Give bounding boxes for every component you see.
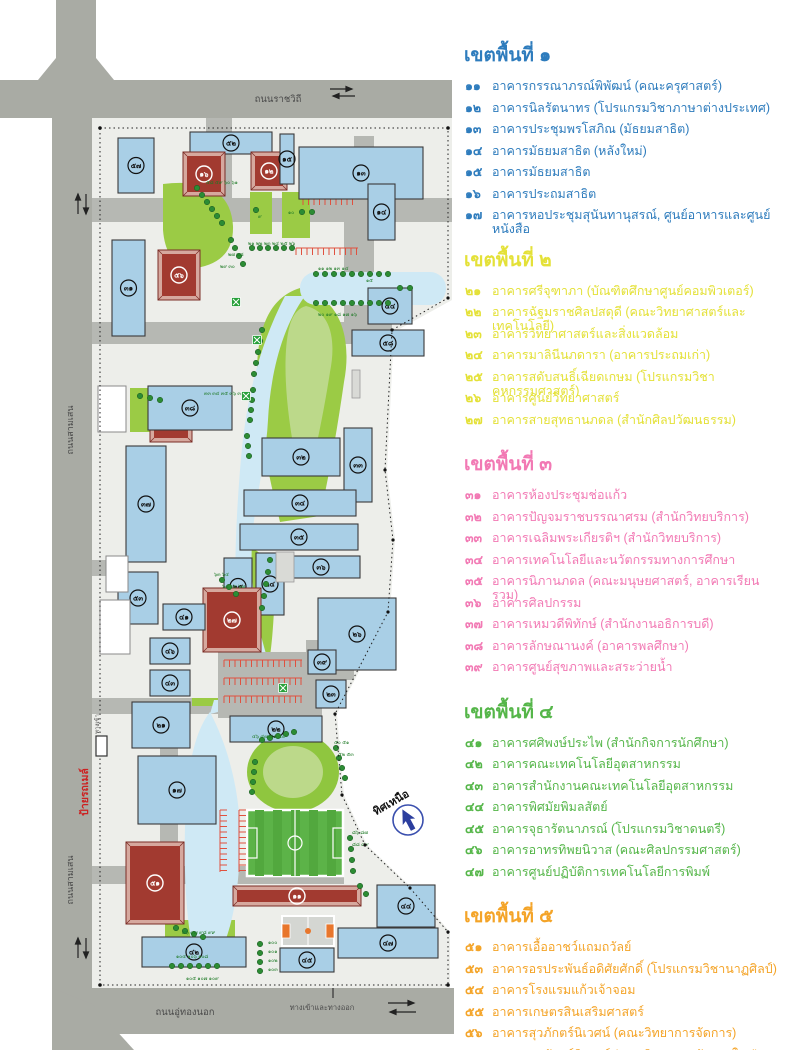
tree-number: ๑๑ ๑๒ ๑๓ ๑๔ — [318, 266, 349, 272]
tree-icon — [367, 271, 372, 276]
item-number: ๓๙ — [465, 660, 492, 674]
svg-text:๑๑: ๑๑ — [293, 893, 302, 900]
legend-item-๓๔: ๓๔อาคารเทคโนโลยีและนวัตกรรมทางการศึกษา — [458, 553, 784, 575]
item-label: อาคารสำนักงานคณะเทคโนโลยีอุตสาหกรรม — [492, 779, 784, 793]
building-๓๕: ๓๕ — [240, 524, 358, 550]
tree-icon — [209, 206, 214, 211]
tree-icon — [214, 963, 219, 968]
tree-icon — [233, 591, 238, 596]
tree-number: ๑๐๕ ๑๐๗ ๑๐๙ — [186, 976, 219, 982]
tree-number: ๒๑ ๒๒ ๒๓ ๒๔ ๒๕ ๒๖ — [248, 241, 295, 247]
tree-icon — [349, 271, 354, 276]
building-๓๔: ๓๔ — [244, 490, 356, 516]
item-label: อาคารนิลรัตนาทร (โปรแกรมวิชาภาษาต่างประเ… — [492, 101, 784, 115]
item-number: ๓๕ — [465, 574, 492, 588]
item-label: อาคารอรประพันธ์อดิศัยศักดิ์ (โปรแกรมวิชา… — [492, 962, 784, 976]
legend-item-๒๒: ๒๒อาคารฉัฐมราชศิลปสดุดี (คณะวิทยาศาสตร์แ… — [458, 305, 784, 327]
legend-item-๓๖: ๓๖อาคารศิลปกรรม — [458, 596, 784, 618]
tree-icon — [253, 207, 258, 212]
map-canvas: ๕๗๕๒๑๖๑๒๑๕๑๓๑๔๓๑๕๖๕๔๕๘๕๕๓๒๓๓๓๔๓๕๓๖๓๗๕๓๒๕… — [0, 0, 455, 1050]
crossing-marker-icon — [253, 336, 262, 345]
tree-icon — [261, 593, 266, 598]
tree-icon — [342, 775, 347, 780]
zone-title: เขตพื้นที่ ๕ — [464, 901, 784, 931]
item-label: อาคารมัธยมสาธิต (หลังใหม่) — [492, 144, 784, 158]
svg-text:๓๖: ๓๖ — [316, 564, 326, 571]
building-๔๕: ๔๕ — [280, 948, 334, 972]
item-number: ๑๑ — [465, 79, 492, 93]
tree-icon — [313, 271, 318, 276]
building-๔๗: ๔๗ — [338, 928, 438, 958]
tree-icon — [267, 557, 272, 562]
svg-text:๓๕: ๓๕ — [294, 534, 305, 541]
tree-icon — [214, 213, 219, 218]
tree-icon — [363, 891, 368, 896]
item-number: ๓๗ — [465, 617, 492, 631]
building-๑๓: ๑๓ — [299, 147, 423, 199]
item-number: ๓๖ — [465, 596, 492, 610]
item-number: ๔๗ — [465, 865, 492, 879]
building-๓๒: ๓๒ — [262, 438, 340, 476]
tree-icon — [253, 360, 258, 365]
item-number: ๑๒ — [465, 101, 492, 115]
building-๕๑: ๕๑ — [126, 842, 184, 924]
road-label-ratchawithi: ถนนราชวิถี — [255, 93, 302, 105]
tree-icon — [263, 581, 268, 586]
svg-text:๑๓: ๑๓ — [356, 170, 365, 177]
tree-icon — [178, 963, 183, 968]
building-๔๔: ๔๔ — [377, 885, 435, 927]
legend-item-๒๑: ๒๑อาคารศรีจุฑาภา (บัณฑิตศึกษาศูนย์คอมพิว… — [458, 284, 784, 306]
tree-number: ๑๕ — [366, 278, 373, 284]
svg-text:๓๔: ๓๔ — [295, 500, 306, 507]
legend-item-๓๙: ๓๙อาคารศูนย์สุขภาพและสระว่ายน้ำ — [458, 660, 784, 682]
map-legend: เขตพื้นที่ ๑๑๑อาคารกรรณาภรณ์พิพัฒน์ (คณะ… — [458, 40, 784, 1050]
item-label: อาคารประชุมพรโสภิณ (มัธยมสาธิต) — [492, 122, 784, 136]
tree-icon — [265, 569, 270, 574]
tree-icon — [331, 300, 336, 305]
campus-map: ๕๗๕๒๑๖๑๒๑๕๑๓๑๔๓๑๕๖๕๔๕๘๕๕๓๒๓๓๓๔๓๕๓๖๓๗๕๓๒๕… — [0, 0, 455, 1050]
item-number: ๓๑ — [465, 488, 492, 502]
item-label: อาคารคณะเทคโนโลยีอุตสาหกรรม — [492, 757, 784, 771]
tree-icon — [259, 605, 264, 610]
tree-icon — [313, 300, 318, 305]
svg-text:๒๑: ๒๑ — [156, 722, 165, 729]
svg-text:๕๓: ๕๓ — [133, 595, 143, 602]
legend-zone-2: เขตพื้นที่ ๒๒๑อาคารศรีจุฑาภา (บัณฑิตศึกษ… — [458, 245, 784, 435]
item-number: ๔๕ — [465, 822, 492, 836]
item-number: ๕๕ — [465, 1005, 492, 1019]
legend-item-๕๖: ๕๖อาคารสุวภักตร์นิเวศน์ (คณะวิทยาการจัดก… — [458, 1026, 784, 1048]
item-number: ๓๓ — [465, 531, 492, 545]
legend-item-๔๓: ๔๓อาคารสำนักงานคณะเทคโนโลยีอุตสาหกรรม — [458, 779, 784, 801]
svg-text:๓๑: ๓๑ — [124, 285, 133, 292]
tree-number: ๑๐๐ — [268, 940, 277, 946]
tree-icon — [251, 769, 256, 774]
legend-item-๒๖: ๒๖อาคารศูนย์วิทยาศาสตร์ — [458, 391, 784, 413]
tree-icon — [205, 963, 210, 968]
svg-text:๓๙: ๓๙ — [317, 659, 327, 666]
item-number: ๑๔ — [465, 144, 492, 158]
building-๕๔: ๕๔ — [368, 288, 412, 324]
tree-icon — [245, 443, 250, 448]
campus-map-page: ๕๗๕๒๑๖๑๒๑๕๑๓๑๔๓๑๕๖๕๔๕๘๕๕๓๒๓๓๓๔๓๕๓๖๓๗๕๓๒๕… — [0, 0, 787, 1050]
tree-number: ๙๖ ๙๗ ๙๘ ๙๙ — [182, 930, 216, 936]
tree-icon — [257, 950, 262, 955]
tree-icon — [347, 835, 352, 840]
legend-item-๔๑: ๔๑อาคารศศิพงษ์ประไพ (สำนักกิจการนักศึกษา… — [458, 736, 784, 758]
item-label: อาคารจุธารัตนาภรณ์ (โปรแกรมวิชาดนตรี) — [492, 822, 784, 836]
legend-item-๑๗: ๑๗อาคารหอประชุมสุนันทานุสรณ์, ศูนย์อาหาร… — [458, 208, 784, 230]
building-๑๔: ๑๔ — [368, 184, 395, 240]
building-๕๗: ๕๗ — [118, 138, 154, 193]
legend-item-๑๔: ๑๔อาคารมัธยมสาธิต (หลังใหม่) — [458, 144, 784, 166]
item-label: อาคารศูนย์วิทยาศาสตร์ — [492, 391, 784, 405]
tree-icon — [376, 271, 381, 276]
item-label: อาคารเอื้ออาชว์แถมถวัลย์ — [492, 940, 784, 954]
item-number: ๑๓ — [465, 122, 492, 136]
tree-number: ๓๓ ๓๔ ๓๕ ๓๖ ๓๗ — [204, 391, 245, 397]
legend-item-๓๘: ๓๘อาคารลักษณานงค์ (อาคารพลศึกษา) — [458, 639, 784, 661]
svg-text:๒๓: ๒๓ — [326, 691, 336, 698]
svg-text:๕๖: ๕๖ — [174, 272, 184, 279]
svg-text:๓๓: ๓๓ — [353, 462, 363, 469]
item-label: อาคารหอประชุมสุนันทานุสรณ์, ศูนย์อาหารแล… — [492, 208, 784, 236]
item-number: ๑๗ — [465, 208, 492, 222]
item-label: อาคารศูนย์ปฏิบัติการเทคโนโลยีการพิมพ์ — [492, 865, 784, 879]
building-๑๖: ๑๖ — [183, 152, 225, 196]
legend-item-๑๕: ๑๕อาคารมัธยมสาธิต — [458, 165, 784, 187]
building-๑๑: ๑๑ — [233, 886, 361, 906]
building-๕๖: ๕๖ — [158, 250, 200, 300]
legend-item-๒๗: ๒๗อาคารสายสุทธานภดล (สำนักศิลปวัฒนธรรม) — [458, 413, 784, 435]
legend-item-๑๖: ๑๖อาคารประถมสาธิต — [458, 187, 784, 209]
building-๓๑: ๓๑ — [112, 240, 145, 336]
svg-text:๔๖: ๔๖ — [165, 648, 175, 655]
tree-number: ๑๐ — [288, 210, 294, 216]
tree-icon — [309, 209, 314, 214]
zone-title: เขตพื้นที่ ๑ — [464, 40, 784, 70]
svg-text:๔๔: ๔๔ — [401, 903, 412, 910]
item-label: อาคารศิลปกรรม — [492, 596, 784, 610]
side-gate-label: ทางเข้า — [94, 714, 101, 734]
tree-icon — [349, 857, 354, 862]
tree-icon — [169, 963, 174, 968]
tree-number: ๕๐ ๕๑ — [334, 740, 349, 746]
svg-text:๑๗: ๑๗ — [172, 787, 182, 794]
item-label: อาคารสายสุทธานภดล (สำนักศิลปวัฒนธรรม) — [492, 413, 784, 427]
tree-icon — [357, 883, 362, 888]
legend-zone-4: เขตพื้นที่ ๔๔๑อาคารศศิพงษ์ประไพ (สำนักกิ… — [458, 697, 784, 887]
tree-icon — [376, 300, 381, 305]
tree-icon — [322, 271, 327, 276]
item-number: ๕๓ — [465, 962, 492, 976]
crossing-marker-icon — [242, 392, 251, 401]
building-unlabeled — [106, 556, 128, 592]
item-label: อาคารมาลินีนภดารา (อาคารประถมเก่า) — [492, 348, 784, 362]
legend-zone-5: เขตพื้นที่ ๕๕๑อาคารเอื้ออาชว์แถมถวัลย์๕๓… — [458, 901, 784, 1050]
building-unlabeled — [98, 386, 126, 432]
building-๒๓: ๒๓ — [316, 680, 346, 708]
tree-number: ๒๐ ๑๙ ๑๘ ๑๗ ๑๖ — [318, 312, 357, 318]
tree-icon — [322, 300, 327, 305]
building-unlabeled — [352, 370, 360, 398]
tree-icon — [157, 397, 162, 402]
tree-icon — [358, 271, 363, 276]
tree-icon — [240, 261, 245, 266]
tree-icon — [244, 433, 249, 438]
tree-icon — [204, 199, 209, 204]
svg-text:๓๘: ๓๘ — [185, 405, 196, 412]
legend-item-๒๔: ๒๔อาคารมาลินีนภดารา (อาคารประถมเก่า) — [458, 348, 784, 370]
tree-icon — [199, 192, 204, 197]
item-number: ๓๘ — [465, 639, 492, 653]
item-number: ๔๖ — [465, 843, 492, 857]
svg-text:๓๒: ๓๒ — [296, 454, 306, 461]
tree-icon — [147, 395, 152, 400]
svg-text:๔๗: ๔๗ — [383, 940, 394, 947]
item-label: อาคารประถมสาธิต — [492, 187, 784, 201]
tree-number: ๒๙ ๓๐ — [220, 264, 235, 270]
tree-icon — [350, 868, 355, 873]
tree-icon — [340, 271, 345, 276]
building-๕๒: ๕๒ — [190, 132, 272, 154]
legend-item-๒๓: ๒๓อาคารวิทยาศาสตร์และสิ่งแวดล้อม — [458, 327, 784, 349]
tree-icon — [385, 271, 390, 276]
road-label-samsen-2: ถนนสามเสน — [65, 856, 75, 905]
tree-icon — [137, 393, 142, 398]
zone-title: เขตพื้นที่ ๒ — [464, 245, 784, 275]
item-number: ๔๓ — [465, 779, 492, 793]
tree-icon — [333, 745, 338, 750]
tree-number: ๑๐๑ — [268, 949, 277, 955]
svg-text:๔๕: ๔๕ — [302, 957, 313, 964]
svg-text:๕๘: ๕๘ — [383, 340, 394, 347]
svg-text:๑๒: ๑๒ — [264, 168, 273, 175]
tree-icon — [251, 371, 256, 376]
building-๕๘: ๕๘ — [352, 330, 424, 356]
legend-item-๑๑: ๑๑อาคารกรรณาภรณ์พิพัฒน์ (คณะครุศาสตร์) — [458, 79, 784, 101]
building-๒๗: ๒๗ — [203, 588, 261, 652]
tree-icon — [196, 963, 201, 968]
football-field — [247, 810, 343, 876]
svg-text:๕๒: ๕๒ — [226, 140, 236, 147]
building-๔๒: ๔๒ — [142, 937, 246, 967]
tree-icon — [367, 300, 372, 305]
tree-icon — [331, 271, 336, 276]
basketball-court — [282, 916, 334, 946]
svg-text:๕๑: ๕๑ — [150, 880, 160, 887]
item-label: อาคารลักษณานงค์ (อาคารพลศึกษา) — [492, 639, 784, 653]
item-label: อาคารศูนย์สุขภาพและสระว่ายน้ำ — [492, 660, 784, 674]
tree-icon — [173, 925, 178, 930]
tree-icon — [257, 941, 262, 946]
item-number: ๒๖ — [465, 391, 492, 405]
building-๔๑: ๔๑ — [163, 604, 205, 630]
legend-item-๔๖: ๔๖อาคารอาทรทิพยนิวาส (คณะศิลปกรรมศาสตร์) — [458, 843, 784, 865]
svg-text:๑๕: ๑๕ — [282, 156, 292, 163]
crossing-marker-icon — [279, 684, 288, 693]
tree-number: ๙ — [258, 214, 262, 220]
item-label: อาคารกรรณาภรณ์พิพัฒน์ (คณะครุศาสตร์) — [492, 79, 784, 93]
tree-number: ๑๐๓ — [268, 967, 278, 973]
tree-number: ๖๓ ๖๔ — [214, 572, 229, 578]
tree-icon — [187, 963, 192, 968]
gate-label: ทางเข้าและทางออก — [290, 1003, 355, 1012]
item-label: อาคารปัญจมราชบรรณาศรม (สำนักวิทยบริการ) — [492, 510, 784, 524]
tree-icon — [219, 220, 224, 225]
item-number: ๔๔ — [465, 800, 492, 814]
legend-item-๓๕: ๓๕อาคารนิภานภดล (คณะมนุษยศาสตร์, อาคารเร… — [458, 574, 784, 596]
svg-text:๑๔: ๑๔ — [377, 209, 387, 216]
building-๑๗: ๑๗ — [138, 756, 216, 824]
crossing-marker-icon — [232, 298, 241, 307]
tree-icon — [246, 453, 251, 458]
item-number: ๔๒ — [465, 757, 492, 771]
legend-item-๑๓: ๑๓อาคารประชุมพรโสภิณ (มัธยมสาธิต) — [458, 122, 784, 144]
tree-icon — [249, 789, 254, 794]
svg-text:๑๖: ๑๖ — [200, 171, 209, 178]
tree-number: ๕๒ ๕๓ — [338, 752, 354, 758]
legend-item-๔๒: ๔๒อาคารคณะเทคโนโลยีอุตสาหกรรม — [458, 757, 784, 779]
item-number: ๒๑ — [465, 284, 492, 298]
tree-icon — [232, 245, 237, 250]
legend-item-๑๒: ๑๒อาคารนิลรัตนาทร (โปรแกรมวิชาภาษาต่างปร… — [458, 101, 784, 123]
road-label-samsen: ถนนสามเสน — [65, 406, 75, 455]
svg-text:๒๖: ๒๖ — [352, 631, 362, 638]
building-๓๗: ๓๗ — [126, 446, 166, 562]
tree-number: ๑๐๒ — [268, 958, 278, 964]
tree-icon — [250, 387, 255, 392]
item-label: อาคารเหมวดีพิทักษ์ (สำนักงานอธิการบดี) — [492, 617, 784, 631]
tree-icon — [349, 300, 354, 305]
item-number: ๒๔ — [465, 348, 492, 362]
tree-icon — [252, 759, 257, 764]
item-label: อาคารวิทยาศาสตร์และสิ่งแวดล้อม — [492, 327, 784, 341]
building-๑๕: ๑๕ — [279, 134, 295, 184]
item-number: ๓๒ — [465, 510, 492, 524]
tree-icon — [358, 300, 363, 305]
item-number: ๒๕ — [465, 370, 492, 384]
tree-icon — [247, 417, 252, 422]
legend-item-๕๔: ๕๔อาคารโรงแรมแก้วเจ้าจอม — [458, 983, 784, 1005]
north-indicator: ทิศเหนือ — [371, 787, 423, 835]
building-unlabeled — [100, 600, 130, 654]
tree-icon — [299, 209, 304, 214]
legend-zone-3: เขตพื้นที่ ๓๓๑อาคารห้องประชุมช่อแก้ว๓๒อา… — [458, 449, 784, 682]
tree-number: ๒๗ ๒๘ — [228, 252, 244, 258]
item-label: อาคารเฉลิมพระเกียรติฯ (สำนักวิทยบริการ) — [492, 531, 784, 545]
tree-number: ๖๕ ๖๖ ๖๗ — [222, 584, 245, 590]
tree-icon — [228, 237, 233, 242]
tree-icon — [257, 959, 262, 964]
tree-icon — [407, 285, 412, 290]
tree-icon — [257, 968, 262, 973]
building-๒๑: ๒๑ — [132, 702, 190, 748]
item-number: ๒๒ — [465, 305, 492, 319]
legend-item-๕๕: ๕๕อาคารเกษตรสินเสริมศาสตร์ — [458, 1005, 784, 1027]
tree-icon — [250, 779, 255, 784]
item-number: ๒๗ — [465, 413, 492, 427]
item-number: ๕๖ — [465, 1026, 492, 1040]
item-label: อาคารมัธยมสาธิต — [492, 165, 784, 179]
road-label-uthongnok: ถนนอู่ทองนอก — [155, 1007, 214, 1018]
item-label: อาคารโรงแรมแก้วเจ้าจอม — [492, 983, 784, 997]
building-๔๖: ๔๖ — [150, 638, 190, 664]
legend-zone-1: เขตพื้นที่ ๑๑๑อาคารกรรณาภรณ์พิพัฒน์ (คณะ… — [458, 40, 784, 230]
tree-icon — [255, 349, 260, 354]
item-number: ๕๑ — [465, 940, 492, 954]
tree-icon — [291, 729, 296, 734]
tree-number: ๑๐๔ ๑๐๖ ๑๐๘ — [176, 954, 208, 960]
svg-text:๔๑: ๔๑ — [179, 614, 189, 621]
svg-text:๒๒: ๒๒ — [271, 726, 281, 733]
zone-title: เขตพื้นที่ ๔ — [464, 697, 784, 727]
item-label: อาคารอาทรทิพยนิวาส (คณะศิลปกรรมศาสตร์) — [492, 843, 784, 857]
tree-icon — [397, 285, 402, 290]
item-number: ๑๕ — [465, 165, 492, 179]
legend-item-๔๔: ๔๔อาคารพิศมัยพิมลสัตย์ — [458, 800, 784, 822]
item-number: ๒๓ — [465, 327, 492, 341]
legend-item-๔๗: ๔๗อาคารศูนย์ปฏิบัติการเทคโนโลยีการพิมพ์ — [458, 865, 784, 887]
zone-title: เขตพื้นที่ ๓ — [464, 449, 784, 479]
item-number: ๔๑ — [465, 736, 492, 750]
item-number: ๑๖ — [465, 187, 492, 201]
legend-item-๓๗: ๓๗อาคารเหมวดีพิทักษ์ (สำนักงานอธิการบดี) — [458, 617, 784, 639]
building-๓๙: ๓๙ — [308, 650, 336, 674]
bus-stop-label: ป้ายรถเมล์ — [78, 768, 91, 816]
svg-text:๓๗: ๓๗ — [141, 501, 151, 508]
tree-number: ๔๖ ๔๗ ๔๘ ๔๙ — [252, 734, 286, 740]
legend-item-๓๒: ๓๒อาคารปัญจมราชบรรณาศรม (สำนักวิทยบริการ… — [458, 510, 784, 532]
legend-item-๕๓: ๕๓อาคารอรประพันธ์อดิศัยศักดิ์ (โปรแกรมวิ… — [458, 962, 784, 984]
item-label: อาคารศรีจุฑาภา (บัณฑิตศึกษาศูนย์คอมพิวเต… — [492, 284, 784, 298]
svg-text:๕๗: ๕๗ — [131, 163, 142, 170]
item-number: ๕๔ — [465, 983, 492, 997]
legend-item-๔๕: ๔๕อาคารจุธารัตนาภรณ์ (โปรแกรมวิชาดนตรี) — [458, 822, 784, 844]
item-number: ๓๔ — [465, 553, 492, 567]
tree-number: ๕๘ ๕๙ ๖๐ ๖๑ — [206, 180, 238, 186]
item-label: อาคารเกษตรสินเสริมศาสตร์ — [492, 1005, 784, 1019]
tree-icon — [340, 300, 345, 305]
svg-text:๔๓: ๔๓ — [165, 680, 175, 687]
legend-item-๓๓: ๓๓อาคารเฉลิมพระเกียรติฯ (สำนักวิทยบริการ… — [458, 531, 784, 553]
tree-number: ๘๖ ๘๗ — [352, 830, 368, 836]
legend-item-๒๕: ๒๕อาคารสดับสนธิ์เฉียดเกษม (โปรแกรมวิชาคห… — [458, 370, 784, 392]
legend-item-๓๑: ๓๑อาคารห้องประชุมช่อแก้ว — [458, 488, 784, 510]
tree-icon — [259, 327, 264, 332]
item-label: อาคารศศิพงษ์ประไพ (สำนักกิจการนักศึกษา) — [492, 736, 784, 750]
tree-icon — [248, 407, 253, 412]
item-label: อาคารเทคโนโลยีและนวัตกรรมทางการศึกษา — [492, 553, 784, 567]
building-๔๓: ๔๓ — [150, 670, 190, 696]
building-unlabeled — [276, 552, 294, 582]
item-label: อาคารสุวภักตร์นิเวศน์ (คณะวิทยาการจัดการ… — [492, 1026, 784, 1040]
tree-icon — [385, 300, 390, 305]
svg-text:๒๗: ๒๗ — [227, 617, 237, 624]
item-label: อาคารห้องประชุมช่อแก้ว — [492, 488, 784, 502]
legend-item-๕๑: ๕๑อาคารเอื้ออาชว์แถมถวัลย์ — [458, 940, 784, 962]
tree-icon — [219, 577, 224, 582]
tree-icon — [194, 185, 199, 190]
item-label: อาคารพิศมัยพิมลสัตย์ — [492, 800, 784, 814]
